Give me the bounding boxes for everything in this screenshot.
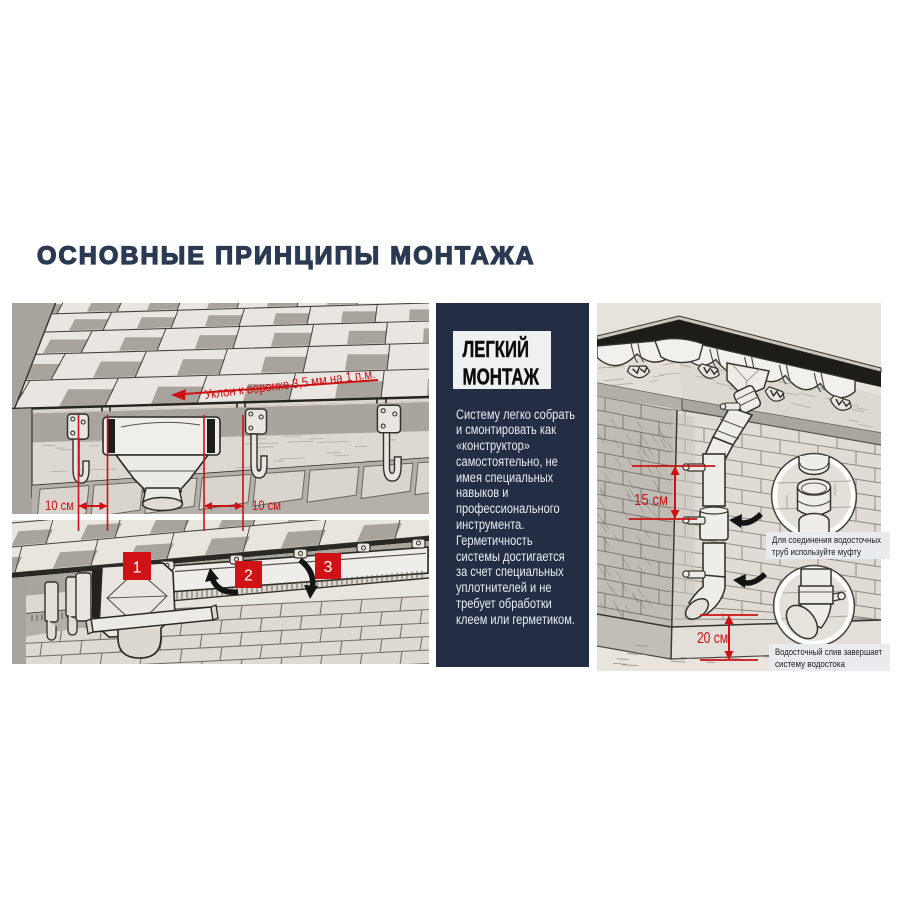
svg-text:20 см: 20 см bbox=[697, 630, 728, 647]
svg-text:труб используйте муфту: труб используйте муфту bbox=[772, 547, 861, 557]
svg-text:систему водостока: систему водостока bbox=[775, 659, 846, 669]
svg-text:МОНТАЖ: МОНТАЖ bbox=[463, 363, 540, 389]
svg-text:10 см: 10 см bbox=[45, 498, 74, 513]
svg-text:1: 1 bbox=[133, 559, 142, 576]
svg-text:3: 3 bbox=[324, 559, 333, 576]
svg-text:Водосточный слив завершает: Водосточный слив завершает bbox=[775, 647, 883, 657]
svg-text:2: 2 bbox=[244, 568, 253, 585]
svg-text:ЛЕГКИЙ: ЛЕГКИЙ bbox=[463, 335, 530, 362]
svg-text:Для соединения водосточных: Для соединения водосточных bbox=[772, 535, 881, 545]
svg-text:15 см: 15 см bbox=[634, 492, 668, 509]
svg-text:10 см: 10 см bbox=[252, 498, 281, 513]
